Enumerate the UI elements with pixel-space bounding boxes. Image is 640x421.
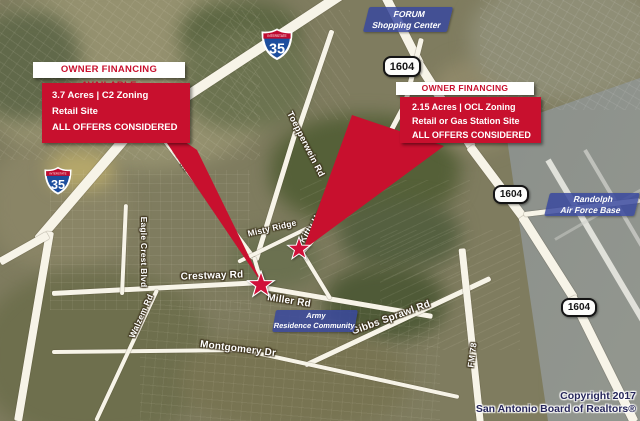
right-callout-line1: 2.15 Acres | OCL Zoning: [412, 100, 541, 114]
right-callout-body: 2.15 Acres | OCL Zoning Retail or Gas St…: [400, 97, 541, 143]
area-label-forum-line1: FORUM: [366, 9, 453, 20]
svg-text:35: 35: [51, 178, 65, 192]
area-label-randolph-line1: Randolph: [547, 194, 640, 205]
loop-1604-shield: 1604: [561, 298, 597, 317]
left-callout-line2: Retail Site: [52, 104, 190, 120]
loop-1604-shield: 1604: [383, 56, 421, 77]
right-callout-header: OWNER FINANCING AVAILABLE: [396, 82, 534, 95]
area-label-forum-line2: Shopping Center: [363, 20, 450, 31]
location-star-icon: [246, 270, 276, 300]
copyright-line2: San Antonio Board of Realtors®: [476, 403, 636, 416]
area-label-randolph-line2: Air Force Base: [544, 205, 637, 216]
copyright-line1: Copyright 2017: [476, 390, 636, 403]
area-label-army-line2: Residence Community: [272, 321, 356, 332]
left-callout-line1: 3.7 Acres | C2 Zoning: [52, 88, 190, 104]
svg-text:35: 35: [269, 42, 285, 58]
road-label-eagle-crest: Eagle Crest Blvd: [139, 217, 149, 288]
location-star-icon: [286, 236, 312, 262]
interstate-35-shield-icon: INTERSTATE 35: [261, 28, 293, 60]
area-label-army-line1: Army: [274, 311, 358, 322]
aerial-property-map: Toepperwein Rd Toepperwein Rd Kitty Hawk…: [0, 0, 640, 421]
interstate-35-shield-icon: INTERSTATE 35: [44, 166, 72, 195]
area-label-forum: FORUM Shopping Center: [363, 7, 453, 32]
right-callout-line3: ALL OFFERS CONSIDERED: [412, 128, 541, 142]
road-label-crestway: Crestway Rd: [180, 269, 243, 282]
right-callout-line2: Retail or Gas Station Site: [412, 114, 541, 128]
left-callout-line3: ALL OFFERS CONSIDERED: [52, 120, 190, 136]
area-label-randolph: Randolph Air Force Base: [544, 193, 640, 216]
copyright-notice: Copyright 2017 San Antonio Board of Real…: [476, 390, 636, 415]
svg-text:INTERSTATE: INTERSTATE: [267, 34, 286, 38]
area-label-army-residence: Army Residence Community: [272, 310, 358, 332]
left-callout-body: 3.7 Acres | C2 Zoning Retail Site ALL OF…: [42, 83, 190, 143]
suburb-texture: [380, 230, 520, 350]
loop-1604-shield: 1604: [493, 185, 529, 204]
svg-text:INTERSTATE: INTERSTATE: [50, 171, 67, 175]
left-callout-header: OWNER FINANCING AVAILABLE: [33, 62, 185, 78]
